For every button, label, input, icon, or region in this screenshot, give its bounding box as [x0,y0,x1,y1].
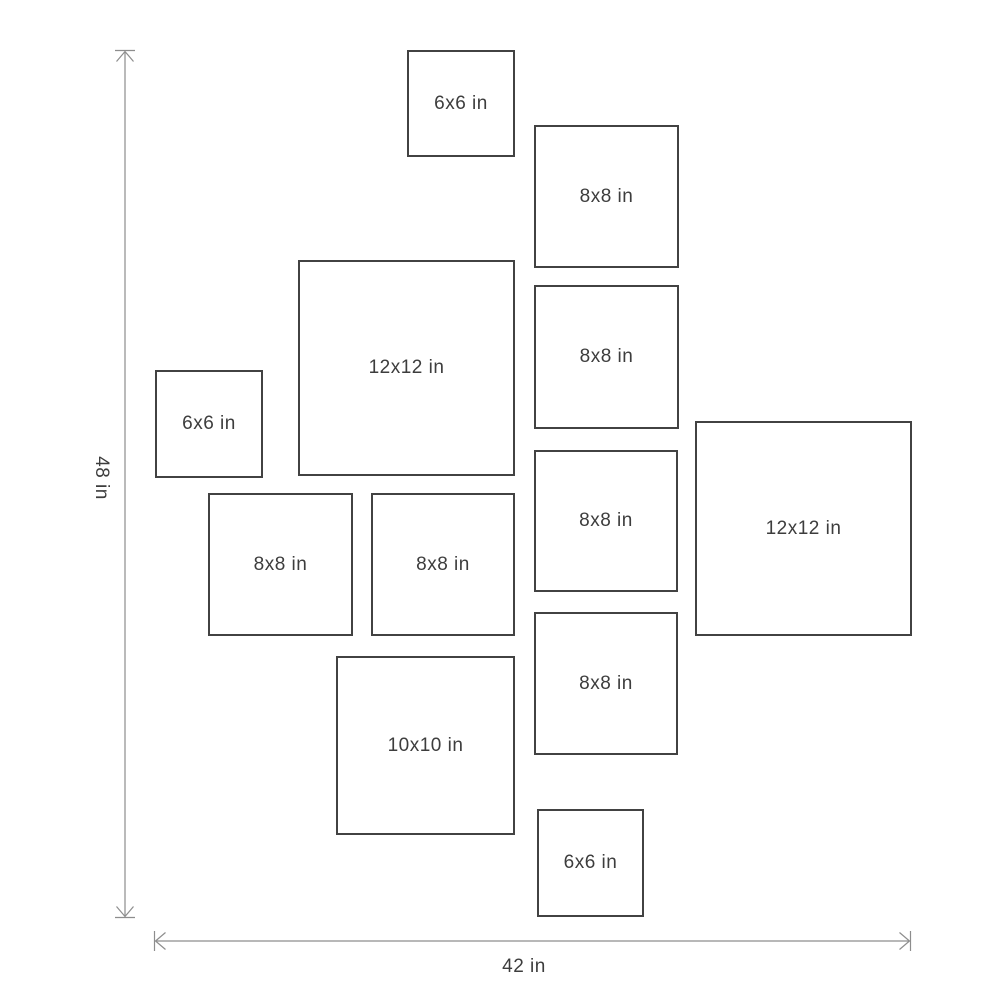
width-dimension-label: 42 in [502,956,546,978]
frame-size-label: 6x6 in [434,93,488,115]
frame-size-label: 6x6 in [182,413,236,435]
frame-box-8x8-right-2: 8x8 in [534,285,679,429]
frame-size-label: 6x6 in [564,852,618,874]
frame-box-6x6-top: 6x6 in [407,50,515,157]
frame-size-label: 8x8 in [254,554,308,576]
frame-box-12x12-left: 12x12 in [298,260,515,476]
frame-size-label: 8x8 in [579,673,633,695]
height-dimension-label: 48 in [90,456,112,500]
width-dimension-arrow [155,931,911,951]
frame-box-8x8-right-3: 8x8 in [534,450,678,592]
frame-size-label: 8x8 in [416,554,470,576]
frame-box-8x8-right-1: 8x8 in [534,125,679,268]
frame-box-6x6-bottom: 6x6 in [537,809,644,917]
height-dimension-arrow [115,51,135,918]
frame-size-label: 8x8 in [579,510,633,532]
frame-size-label: 12x12 in [766,518,842,540]
frame-size-label: 10x10 in [388,735,464,757]
frame-box-8x8-right-4: 8x8 in [534,612,678,755]
frame-size-label: 8x8 in [580,186,634,208]
frame-box-10x10: 10x10 in [336,656,515,835]
frame-box-8x8-mid: 8x8 in [371,493,515,636]
frame-box-6x6-left: 6x6 in [155,370,263,478]
gallery-wall-diagram: 48 in 42 in 6x6 in 8x8 in 12x12 in 8x8 i… [0,0,1000,1000]
frame-size-label: 8x8 in [580,346,634,368]
frame-box-12x12-right: 12x12 in [695,421,912,636]
frame-box-8x8-mid-left: 8x8 in [208,493,353,636]
frame-size-label: 12x12 in [369,357,445,379]
